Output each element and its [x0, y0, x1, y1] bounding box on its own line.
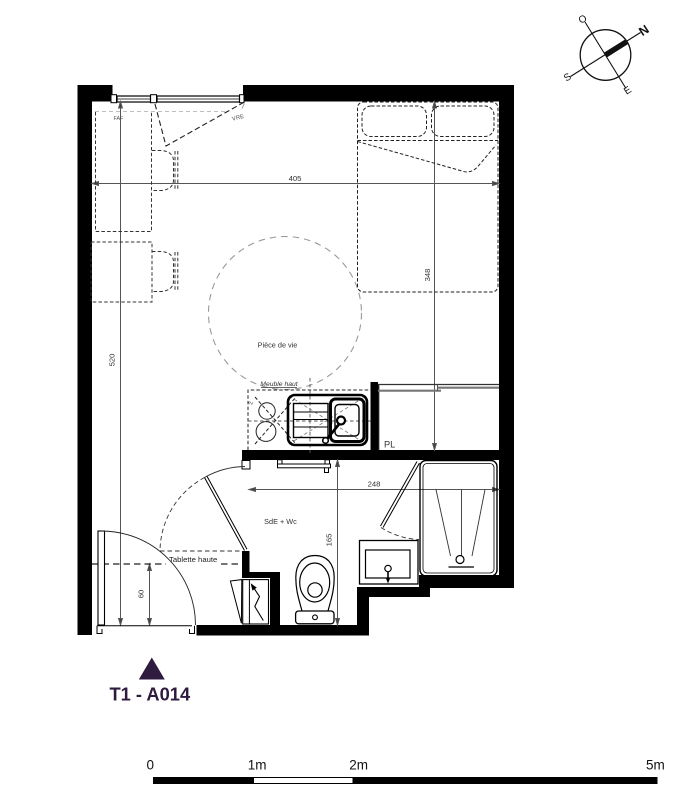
svg-text:Pièce de vie: Pièce de vie — [258, 340, 298, 349]
svg-text:2m: 2m — [349, 758, 368, 773]
svg-text:Meuble haut: Meuble haut — [260, 381, 299, 388]
svg-text:FAF: FAF — [114, 116, 125, 122]
svg-text:405: 405 — [289, 174, 302, 183]
svg-text:PL: PL — [384, 439, 395, 449]
svg-text:1m: 1m — [248, 758, 267, 773]
svg-text:0: 0 — [147, 758, 155, 773]
svg-text:248: 248 — [368, 479, 381, 488]
svg-text:60: 60 — [137, 590, 146, 599]
svg-text:5m: 5m — [646, 758, 665, 773]
svg-text:SdE + Wc: SdE + Wc — [264, 517, 297, 526]
svg-text:Tablette haute: Tablette haute — [169, 555, 217, 564]
svg-text:348: 348 — [423, 269, 432, 282]
svg-text:520: 520 — [108, 354, 117, 367]
svg-text:T1 - A014: T1 - A014 — [110, 684, 191, 705]
svg-text:165: 165 — [325, 534, 334, 547]
